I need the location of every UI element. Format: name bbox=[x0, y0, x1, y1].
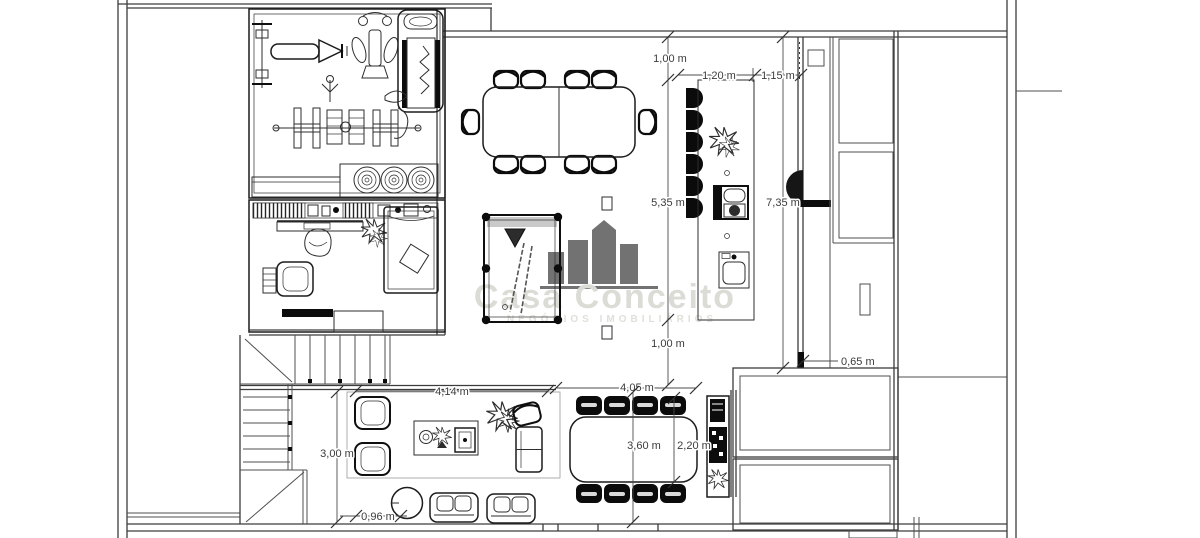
watermark-tagline: NEGÓCIOS IMOBILIÁRIOS bbox=[507, 312, 717, 325]
dim-label-counter-gap: 0,65 m bbox=[841, 356, 875, 368]
armchair bbox=[277, 262, 313, 296]
sofa-right bbox=[516, 427, 542, 472]
corridor-and-closets bbox=[786, 31, 1007, 530]
dim-label-passage-width: 1,15 m bbox=[761, 70, 795, 82]
coffee-table bbox=[414, 421, 478, 455]
sideboard bbox=[707, 390, 736, 497]
office-cabinet bbox=[282, 309, 383, 332]
island-sink bbox=[714, 186, 748, 219]
round-side-table bbox=[392, 488, 423, 519]
loveseat-2 bbox=[487, 494, 535, 523]
armchair-left-2 bbox=[355, 443, 390, 475]
side-table bbox=[263, 268, 276, 293]
dim-label-island-bottom-gap: 1,00 m bbox=[651, 338, 685, 350]
lounge-chair bbox=[512, 401, 542, 427]
cooktop-element bbox=[808, 50, 824, 66]
island-plant bbox=[709, 127, 743, 161]
exercise-balls bbox=[340, 164, 438, 197]
bookshelf bbox=[253, 203, 438, 218]
floor-plan-drawing: Casa Conceito NEGÓCIOS IMOBILIÁRIOS bbox=[0, 0, 1200, 538]
living-room bbox=[347, 392, 560, 523]
dim-label-island-width: 1,20 m bbox=[702, 70, 736, 82]
office-room bbox=[249, 200, 445, 335]
office-plant bbox=[361, 219, 390, 250]
desk-chair bbox=[305, 229, 331, 256]
armchair-left-1 bbox=[355, 397, 390, 429]
dim-label-island-length: 5,35 m bbox=[651, 197, 685, 209]
dim-label-island-top-gap: 1,00 m bbox=[653, 53, 687, 65]
loveseat-1 bbox=[430, 493, 478, 522]
gym-shelf bbox=[252, 177, 340, 197]
wall-niche bbox=[860, 284, 870, 315]
floor-plan-canvas: Casa Conceito NEGÓCIOS IMOBILIÁRIOS bbox=[0, 0, 1200, 538]
dim-label-table-length: 3,60 m bbox=[627, 440, 661, 452]
closet-lower bbox=[839, 152, 893, 238]
dim-label-sofa-gap: 0,96 m bbox=[361, 511, 395, 523]
watermark-brand: Casa Conceito bbox=[474, 278, 736, 316]
dim-label-living-width: 4,14 m bbox=[435, 386, 469, 398]
multi-gym bbox=[273, 76, 421, 149]
dim-label-table-clearance: 2,20 m bbox=[677, 440, 711, 452]
daybed bbox=[384, 207, 438, 293]
dining-table-main bbox=[462, 71, 656, 173]
leg-press-machine bbox=[349, 13, 400, 79]
dim-label-living-depth: 3,00 m bbox=[320, 448, 354, 460]
treadmill bbox=[398, 10, 443, 112]
dim-label-room-length: 7,35 m bbox=[766, 197, 800, 209]
gym-room bbox=[249, 9, 445, 198]
rooms-bottom-right bbox=[733, 368, 898, 538]
closet-upper bbox=[839, 39, 893, 143]
